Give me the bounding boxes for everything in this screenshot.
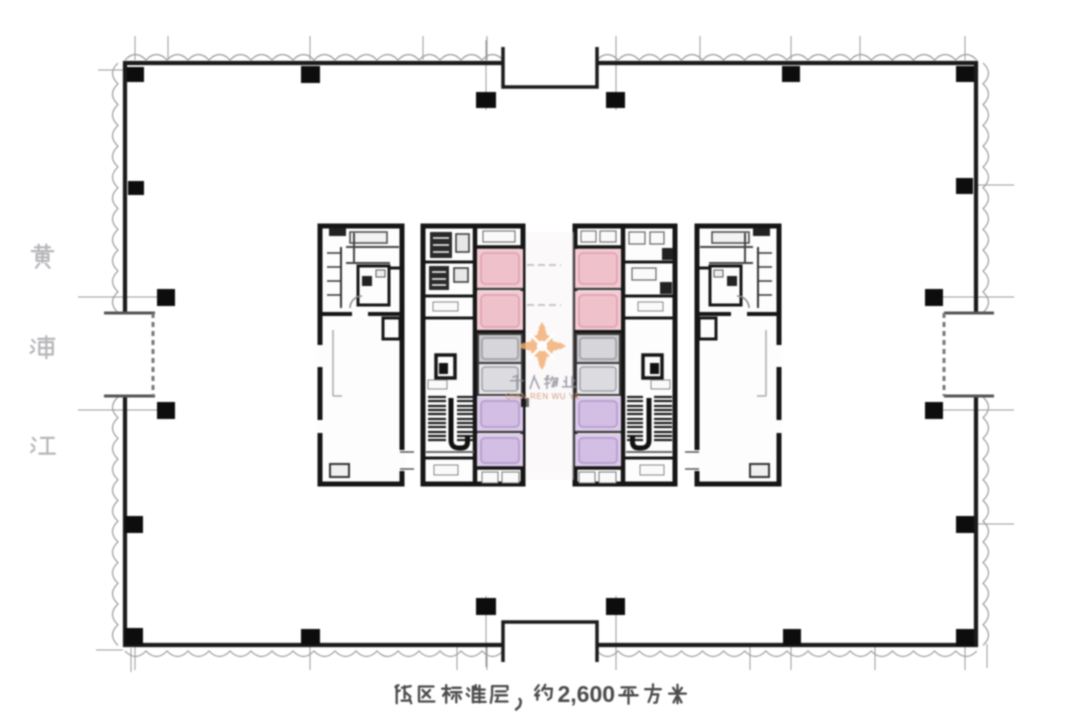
svg-text:QIAN REN WU YE: QIAN REN WU YE	[505, 392, 580, 401]
svg-text:2,600: 2,600	[558, 681, 616, 707]
